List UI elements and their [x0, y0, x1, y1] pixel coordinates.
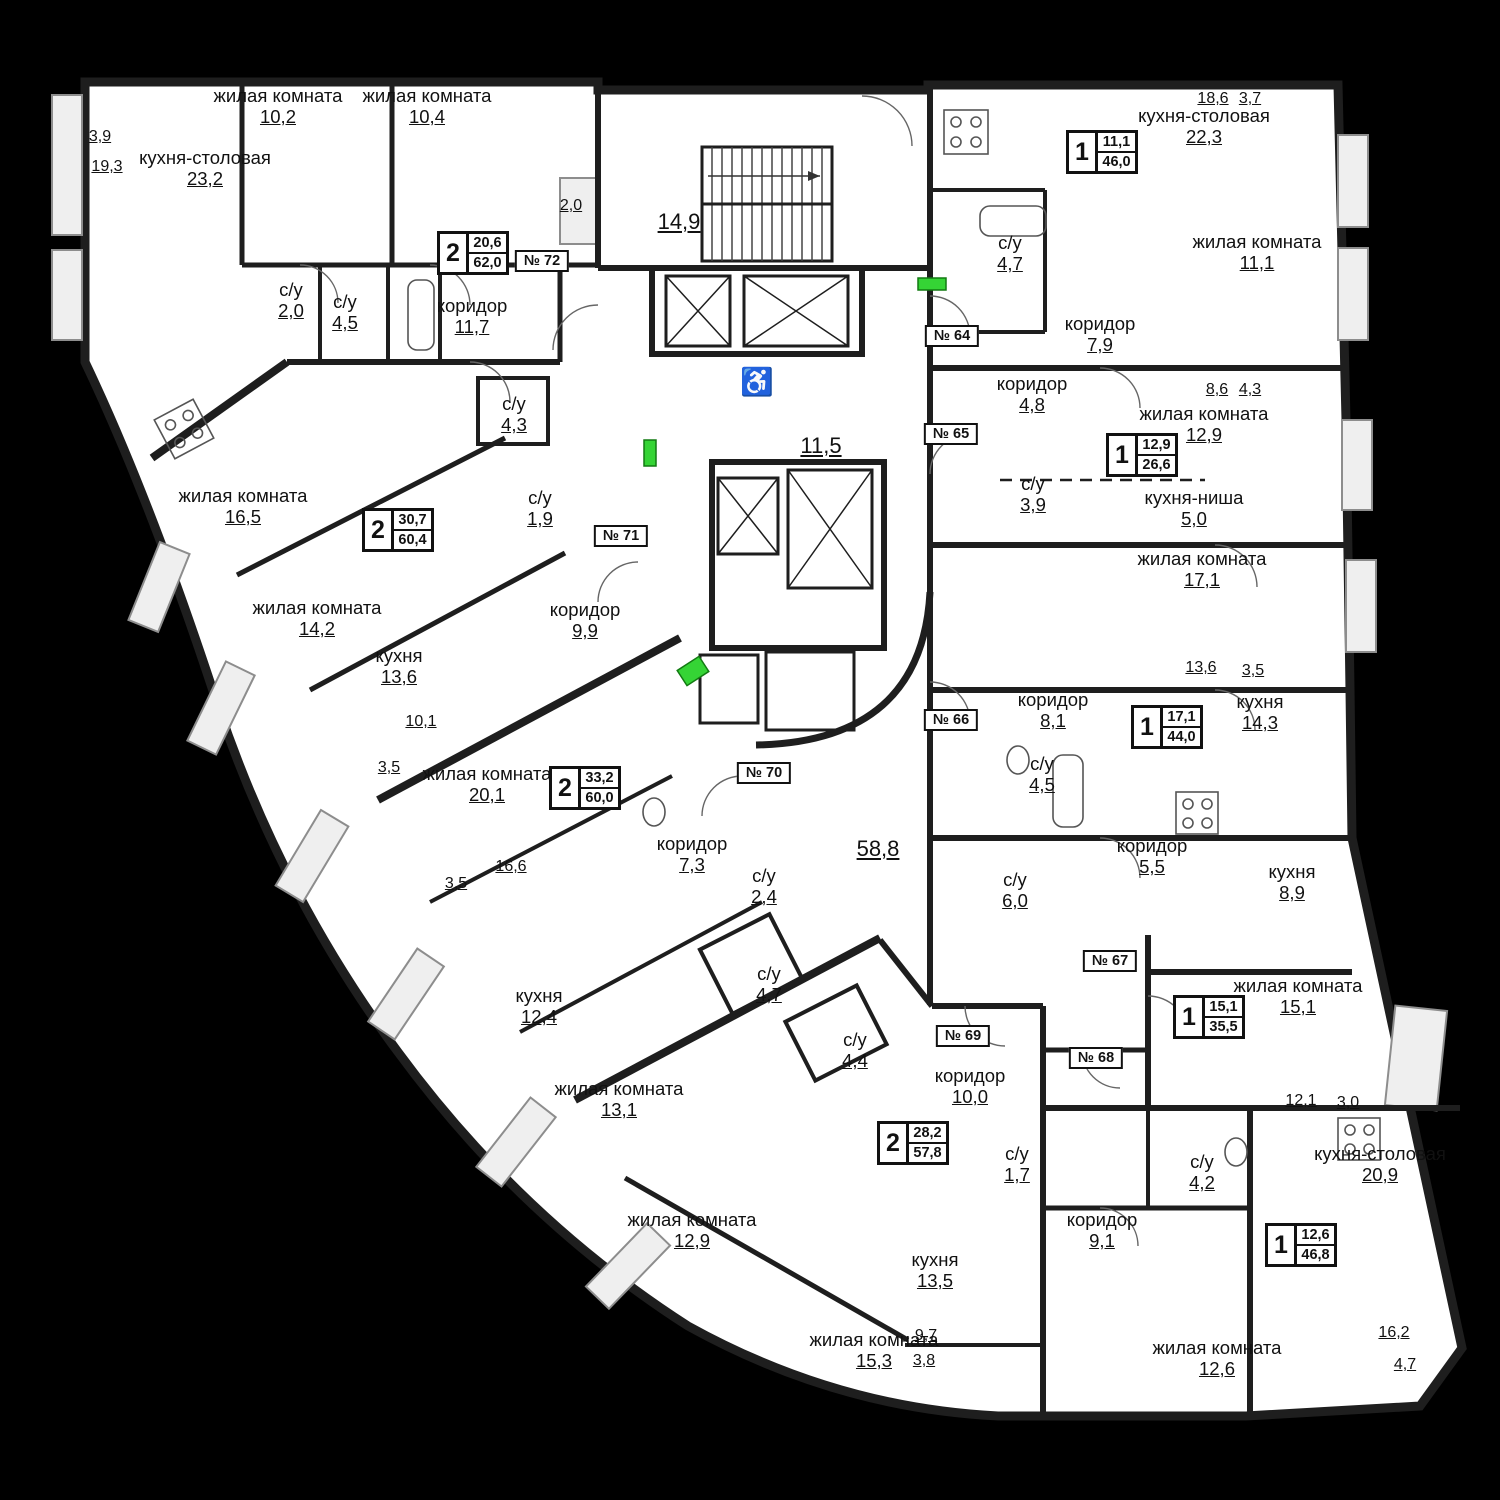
room-label: кухня13,5: [865, 1250, 1005, 1292]
apartment-stat-box-71: 2 30,7 60,4: [362, 508, 434, 552]
room-label: коридор9,9: [515, 600, 655, 642]
room-label: жилая комната17,1: [1132, 549, 1272, 591]
room-label: коридор5,5: [1082, 836, 1222, 878]
room-label: с/у1,9: [470, 488, 610, 530]
dim-label: 4,3: [1239, 381, 1261, 399]
room-label: жилая комната10,2: [208, 86, 348, 128]
room-label: с/у1,7: [947, 1144, 1087, 1186]
dim-label: 3,8: [913, 1352, 935, 1370]
room-label: коридор7,9: [1030, 314, 1170, 356]
room-label: жилая комната14,2: [247, 598, 387, 640]
room-label: коридор9,1: [1032, 1210, 1172, 1252]
room-label: коридор4,8: [962, 374, 1102, 416]
dim-label: 3,9: [89, 128, 111, 146]
dim-label: 10,1: [405, 713, 436, 731]
stair-area-label: 14,9: [658, 209, 701, 235]
room-label: с/у4,5: [275, 292, 415, 334]
room-label: с/у6,0: [945, 870, 1085, 912]
door-tag-71: № 71: [594, 525, 648, 547]
door-tag-70: № 70: [737, 762, 791, 784]
room-label: жилая комната12,6: [1147, 1338, 1287, 1380]
room-label: кухня12,4: [469, 986, 609, 1028]
dim-label: 13,6: [1185, 659, 1216, 677]
dim-label: 16,2: [1378, 1324, 1409, 1342]
dim-label: 3,7: [1239, 90, 1261, 108]
room-label: кухня14,3: [1190, 692, 1330, 734]
dim-label: 8,6: [1206, 381, 1228, 399]
elevator-lobby-area-label: 11,5: [800, 433, 841, 459]
apartment-stat-box-67: 1 15,1 35,5: [1173, 995, 1245, 1039]
room-label: жилая комната12,9: [622, 1210, 762, 1252]
floor-plan-drawing: [0, 0, 1500, 1500]
room-label: коридор8,1: [983, 690, 1123, 732]
dim-label: 2,0: [560, 197, 582, 215]
dim-label: 3,5: [378, 759, 400, 777]
door-tag-64: № 64: [925, 325, 979, 347]
room-label: с/у3,9: [963, 474, 1103, 516]
door-tag-69: № 69: [936, 1025, 990, 1047]
room-label: жилая комната20,1: [417, 764, 557, 806]
door-tag-66: № 66: [924, 709, 978, 731]
apartment-stat-box-65: 1 12,9 26,6: [1106, 433, 1178, 477]
apartment-stat-box-68: 1 12,6 46,8: [1265, 1223, 1337, 1267]
room-label: жилая комната11,1: [1187, 232, 1327, 274]
dim-label: 3,0: [1337, 1094, 1359, 1112]
room-label: с/у2,4: [694, 866, 834, 908]
room-label: кухня-столовая22,3: [1134, 106, 1274, 148]
dim-label: 9,7: [915, 1327, 937, 1345]
room-label: с/у4,3: [444, 394, 584, 436]
dim-label: 12,1: [1285, 1092, 1316, 1110]
door-tag-72: № 72: [515, 250, 569, 272]
dim-label: 18,6: [1197, 90, 1228, 108]
dim-label: 4,7: [1394, 1356, 1416, 1374]
apartment-stat-box-69: 2 28,2 57,8: [877, 1121, 949, 1165]
room-label: с/у4,7: [940, 233, 1080, 275]
room-label: кухня-столовая20,9: [1310, 1144, 1450, 1186]
room-label: коридор11,7: [402, 296, 542, 338]
room-label: жилая комната10,4: [357, 86, 497, 128]
door-tag-67: № 67: [1083, 950, 1137, 972]
room-label: с/у4,2: [1132, 1152, 1272, 1194]
hall-area-label: 58,8: [857, 836, 900, 862]
apartment-stat-box-66: 1 17,1 44,0: [1131, 705, 1203, 749]
apartment-stat-box-70: 2 33,2 60,0: [549, 766, 621, 810]
dim-label: 19,3: [91, 158, 122, 176]
room-label: кухня8,9: [1222, 862, 1362, 904]
apartment-stat-box-64: 1 11,1 46,0: [1066, 130, 1138, 174]
room-label: кухня13,6: [329, 646, 469, 688]
wheelchair-icon: ♿: [740, 366, 774, 398]
dim-label: 16,6: [495, 858, 526, 876]
room-label: кухня-ниша5,0: [1124, 488, 1264, 530]
room-label: жилая комната15,1: [1228, 976, 1368, 1018]
floor-plan-page: ♿ 14,9 11,5 58,8 кухня-столовая23,2 жила…: [0, 0, 1500, 1500]
room-label: с/у4,7: [699, 964, 839, 1006]
dim-label: 3,5: [1242, 662, 1264, 680]
door-tag-65: № 65: [924, 423, 978, 445]
room-label: коридор10,0: [900, 1066, 1040, 1108]
dim-label: 3,5: [445, 875, 467, 893]
apartment-stat-box-72: 2 20,6 62,0: [437, 231, 509, 275]
room-label: с/у4,5: [972, 754, 1112, 796]
room-label: жилая комната16,5: [173, 486, 313, 528]
room-label: жилая комната13,1: [549, 1079, 689, 1121]
room-label: кухня-столовая23,2: [135, 148, 275, 190]
door-tag-68: № 68: [1069, 1047, 1123, 1069]
